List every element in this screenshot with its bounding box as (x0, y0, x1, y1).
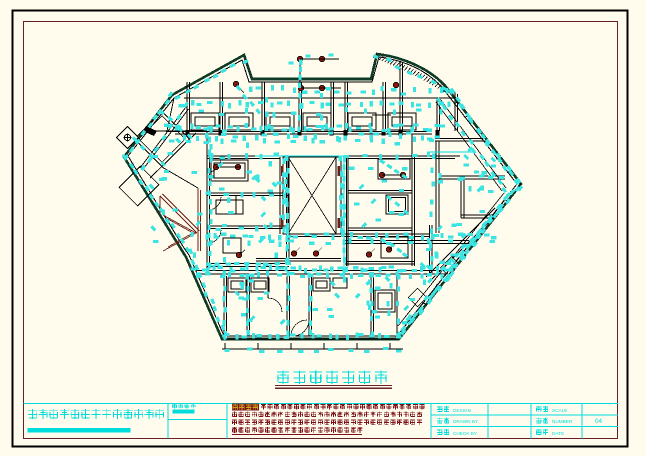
svg-text:DATE: DATE (552, 431, 564, 436)
svg-text:DESIGN: DESIGN (453, 408, 471, 413)
svg-text:NUMBER: NUMBER (552, 419, 573, 424)
svg-text:04: 04 (595, 418, 603, 425)
svg-text:SCALE: SCALE (552, 408, 567, 413)
svg-text:DRAWN BY: DRAWN BY (453, 419, 479, 424)
svg-text:CHECK BY: CHECK BY (453, 431, 478, 436)
